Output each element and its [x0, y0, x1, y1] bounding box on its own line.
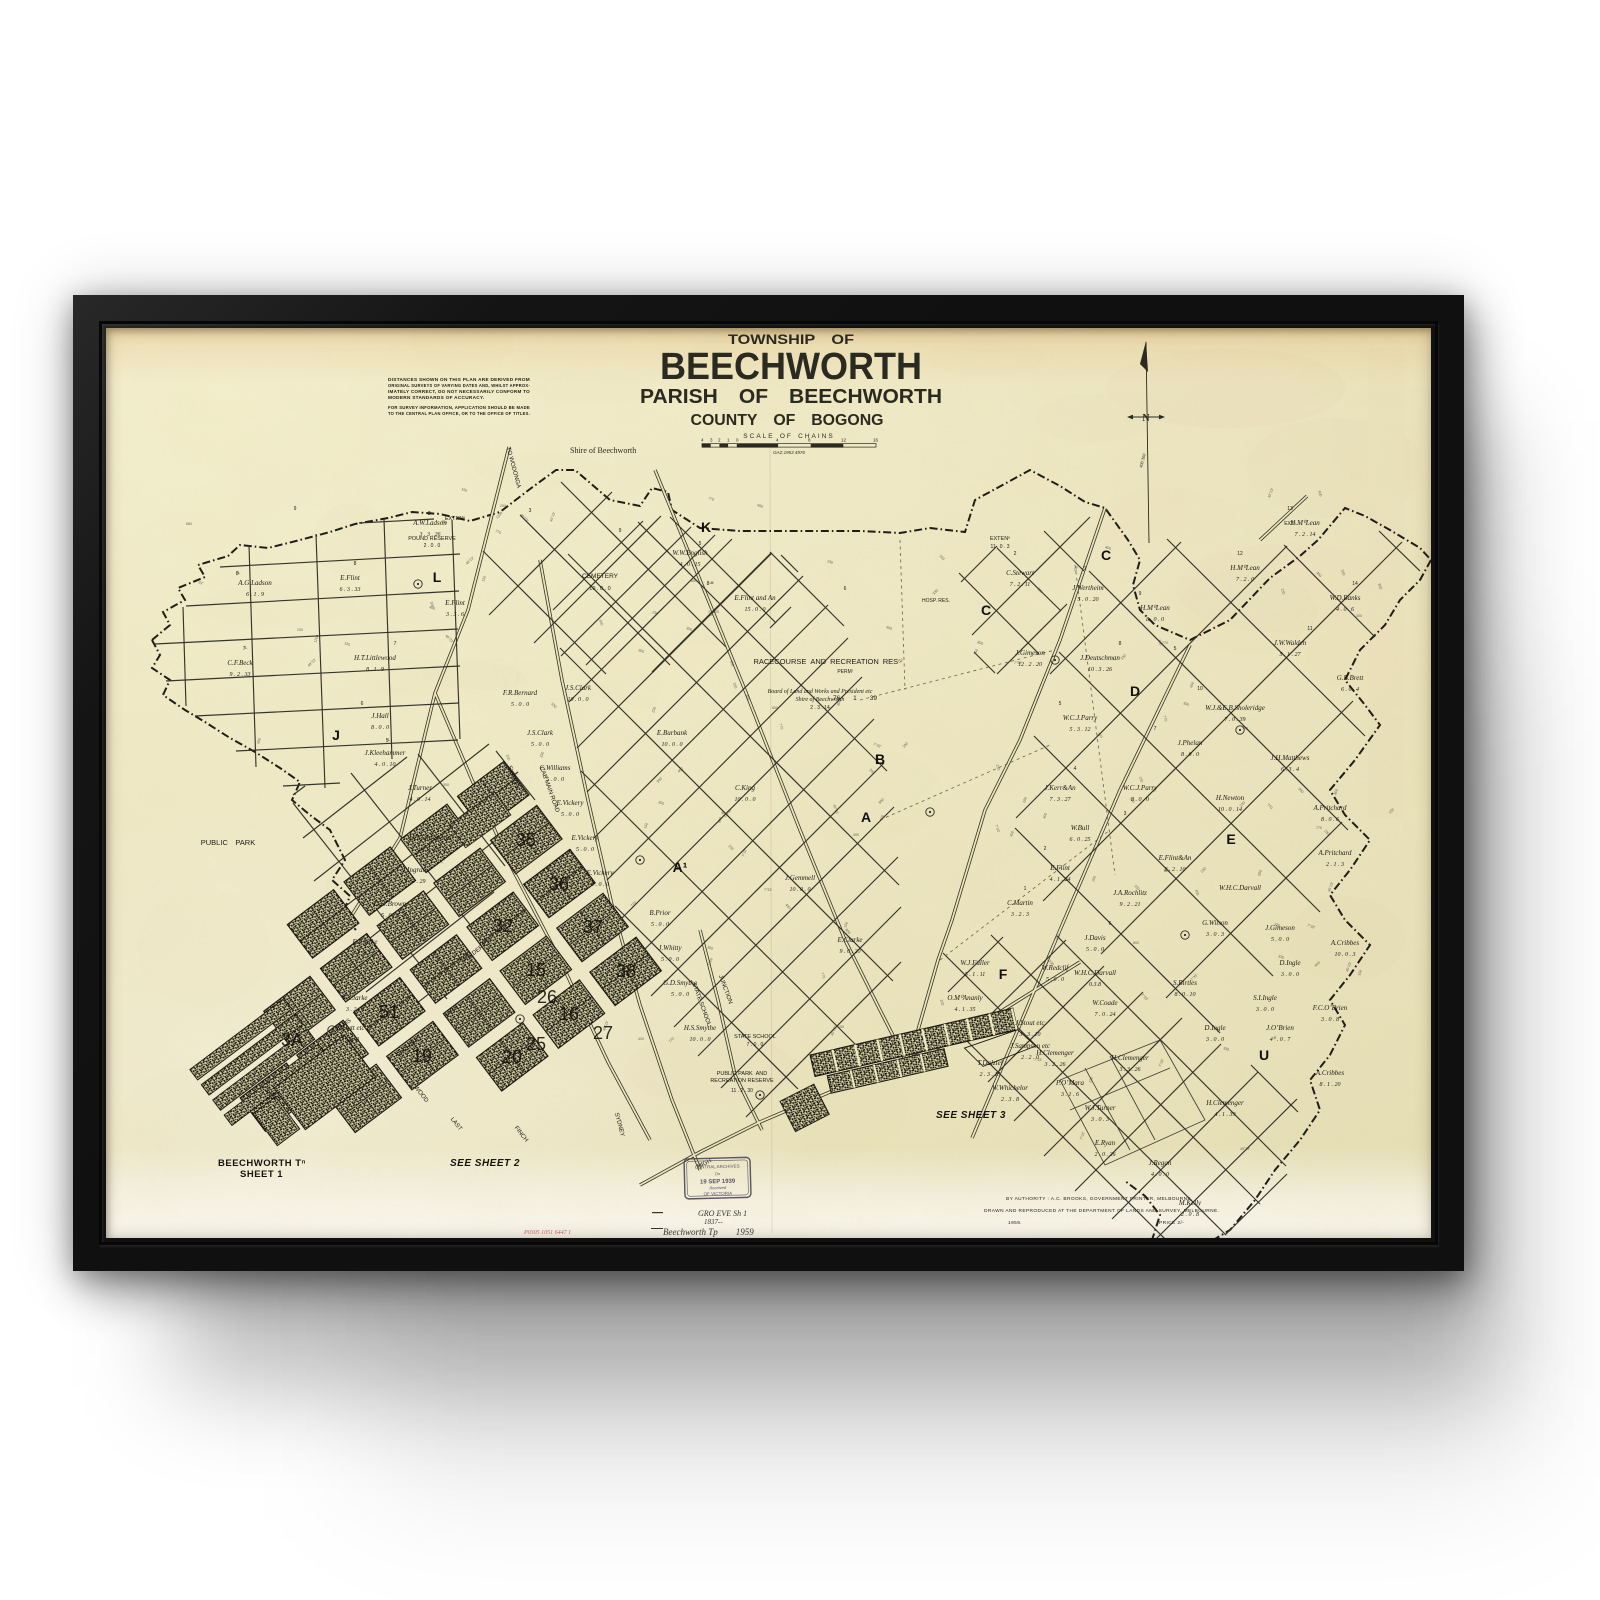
svg-text:8⸱ᴹ: 8⸱ᴹ [707, 581, 714, 587]
svg-text:150: 150 [838, 1025, 844, 1029]
svg-text:9: 9 [619, 528, 622, 534]
svg-text:2ᴸ: 2ᴸ [428, 511, 433, 517]
svg-text:5 . 0 . 0: 5 . 0 . 0 [661, 957, 679, 963]
svg-text:SCALE OF CHAINS: SCALE OF CHAINS [743, 433, 834, 440]
svg-text:U: U [1259, 1047, 1269, 1063]
svg-text:J.Ingram: J.Ingram [402, 866, 427, 874]
svg-text:PERMⁱ: PERMⁱ [837, 668, 852, 675]
svg-text:5 . 0 . 0: 5 . 0 . 0 [1086, 947, 1104, 953]
svg-text:400: 400 [638, 1037, 644, 1041]
svg-text:5 . 0 . 0: 5 . 0 . 0 [1271, 937, 1289, 943]
svg-text:P.OʼMara: P.OʼMara [1055, 1079, 1085, 1087]
svg-text:5ᴸ: 5ᴸ [386, 738, 391, 744]
svg-text:H.Clemenger: H.Clemenger [1035, 1049, 1074, 1057]
svg-text:S.Birtles: S.Birtles [1173, 979, 1197, 987]
svg-text:9 . 0 . 20: 9 . 0 . 20 [840, 949, 861, 955]
svg-text:J.Regan: J.Regan [1149, 1159, 1172, 1167]
svg-text:1837--: 1837-- [704, 1218, 723, 1226]
svg-text:6 . 0 . 4: 6 . 0 . 4 [1341, 686, 1359, 693]
svg-text:4 . 0 . 2: 4 . 0 . 2 [356, 950, 374, 957]
svg-text:5 . 0 . 0: 5 . 0 . 0 [561, 812, 579, 818]
svg-text:C.Stewart: C.Stewart [1006, 569, 1035, 577]
svg-text:D.Ingle: D.Ingle [1203, 1024, 1225, 1032]
svg-text:H.T.Littlewood: H.T.Littlewood [353, 654, 396, 662]
svg-text:12: 12 [841, 438, 847, 443]
svg-text:FOR SURVEY INFORMATION, APPLIC: FOR SURVEY INFORMATION, APPLICATION SHOU… [388, 405, 530, 410]
svg-text:3 . 0 . 3: 3 . 0 . 3 [1205, 932, 1224, 938]
svg-text:J.Gimeson: J.Gimeson [1265, 924, 1295, 932]
svg-text:5 . 0 . 0: 5 . 0 . 0 [671, 992, 689, 998]
svg-text:PRICE 2/-: PRICE 2/- [1159, 1220, 1184, 1226]
svg-text:E.Flint: E.Flint [339, 574, 361, 582]
svg-text:J.Gemmell: J.Gemmell [785, 874, 815, 882]
svg-text:7ᴸ: 7ᴸ [243, 646, 248, 652]
svg-text:5 . 1 . 11: 5 . 1 . 11 [965, 972, 986, 978]
svg-text:RACECOURSE AND RECREATION R: RACECOURSE AND RECREATION RES⁵ⁱ [753, 657, 902, 666]
svg-text:3 . 3 . 6: 3 . 3 . 6 [445, 612, 464, 618]
svg-text:MODERN STANDARDS OF ACCURACY.: MODERN STANDARDS OF ACCURACY. [388, 395, 484, 400]
svg-text:3 . 2 . 26: 3 . 2 . 26 [1044, 1062, 1066, 1068]
svg-text:4 . 0 . 15: 4 . 0 . 15 [680, 561, 701, 568]
svg-text:5 . 0 . 0: 5 . 0 . 0 [531, 742, 549, 748]
svg-text:W.J.Turner: W.J.Turner [1085, 1104, 1116, 1112]
svg-text:H.Clemenger: H.Clemenger [1110, 1054, 1149, 1062]
svg-text:COUNTY OF BOGONG: COUNTY OF BOGONG [691, 412, 884, 429]
svg-text:10 . 0 . 0: 10 . 0 . 0 [568, 697, 589, 703]
svg-text:8ᴸ: 8ᴸ [236, 571, 241, 577]
svg-text:0.3.8: 0.3.8 [1089, 982, 1101, 988]
svg-text:2 . 0 . 26: 2 . 0 . 26 [1095, 1152, 1116, 1158]
svg-text:A.Cribbes: A.Cribbes [1330, 939, 1359, 947]
svg-text:Board of Land and Works and Pr: Board of Land and Works and President et… [768, 688, 873, 695]
svg-text:37: 37 [583, 917, 603, 937]
svg-text:8: 8 [1119, 641, 1122, 647]
svg-text:W.J.Fuller: W.J.Fuller [960, 959, 990, 967]
svg-text:E.Flint: E.Flint [444, 599, 466, 607]
svg-text:10 . 0 . 3: 10 . 0 . 3 [1335, 952, 1356, 958]
svg-text:26: 26 [537, 987, 557, 1007]
svg-text:3 . 0 . 8: 3 . 0 . 8 [1320, 1017, 1339, 1023]
svg-text:3 . 0 . 3: 3 . 0 . 3 [1090, 1117, 1109, 1123]
svg-text:C: C [981, 602, 991, 618]
svg-text:C: C [1101, 547, 1111, 563]
svg-text:7 . 0 . 24: 7 . 0 . 24 [1095, 1011, 1116, 1018]
svg-text:A¹: A¹ [673, 859, 688, 875]
svg-text:8 . 0 . 0: 8 . 0 . 0 [1181, 752, 1199, 758]
svg-text:J.Hall: J.Hall [371, 712, 388, 720]
svg-text:1959.: 1959. [1008, 1220, 1022, 1226]
svg-text:300: 300 [443, 783, 449, 787]
svg-text:5 . 1 . 27: 5 . 1 . 27 [1280, 652, 1302, 658]
svg-text:J.Gimeson: J.Gimeson [1015, 649, 1045, 657]
svg-text:J.Phelan: J.Phelan [1178, 739, 1203, 747]
svg-text:F: F [999, 966, 1008, 982]
svg-text:7 . 3 . 27: 7 . 3 . 27 [1050, 797, 1072, 803]
svg-text:10 . 3 . 26: 10 . 3 . 26 [1088, 667, 1112, 673]
svg-text:J.S.Clark: J.S.Clark [527, 729, 554, 737]
svg-text:E: E [1226, 831, 1235, 847]
svg-text:4: 4 [1074, 766, 1077, 772]
svg-text:W.H.C.Darvall: W.H.C.Darvall [1219, 884, 1261, 892]
svg-text:L: L [433, 569, 442, 585]
svg-text:C.Martin: C.Martin [1007, 899, 1033, 907]
svg-text:770: 770 [1162, 641, 1168, 645]
svg-text:25: 25 [526, 1034, 546, 1054]
svg-text:H.Clemenger: H.Clemenger [1205, 1099, 1244, 1107]
svg-text:J.Wertheim: J.Wertheim [1072, 584, 1103, 592]
svg-text:J.S.Clark: J.S.Clark [565, 684, 592, 692]
svg-text:T.Dalziel: T.Dalziel [977, 1059, 1002, 1067]
svg-text:3 . 0 . 0: 3 . 0 . 0 [1280, 972, 1299, 978]
svg-text:E.Flint and An: E.Flint and An [733, 594, 776, 602]
svg-text:J.A.Rochlitz: J.A.Rochlitz [1113, 889, 1147, 897]
svg-text:16: 16 [873, 438, 879, 443]
svg-text:7: 7 [394, 641, 397, 647]
svg-text:6 . 3 . 4: 6 . 3 . 4 [1281, 766, 1299, 773]
svg-text:OF VICTORIA: OF VICTORIA [704, 1191, 733, 1197]
svg-text:W.Redclif: W.Redclif [1042, 964, 1070, 972]
svg-text:E.Burbank: E.Burbank [656, 729, 688, 737]
svg-text:2 . 3 . 15: 2 . 3 . 15 [980, 1072, 1001, 1078]
svg-text:BY AUTHORITY : A.C. BROOKS: BY AUTHORITY : A.C. BROOKS, GOVERNMENT P… [1006, 1196, 1193, 1202]
svg-text:230: 230 [297, 628, 303, 632]
svg-text:E.Ryan: E.Ryan [1094, 1139, 1116, 1147]
svg-text:10 . 0 . 0: 10 . 0 . 0 [690, 1037, 711, 1043]
svg-text:E.Vickery: E.Vickery [556, 799, 585, 807]
svg-text:G.O.Brown: G.O.Brown [374, 900, 407, 908]
svg-text:D: D [1130, 683, 1140, 699]
svg-text:8 . 0 . 0: 8 . 0 . 0 [1146, 617, 1164, 623]
svg-text:5 . 0 . 0: 5 . 0 . 0 [1046, 977, 1064, 983]
svg-text:5: 5 [1174, 646, 1177, 652]
svg-text:P0305 1051 6447 1: P0305 1051 6447 1 [523, 1229, 571, 1236]
svg-text:2: 2 [1044, 846, 1047, 852]
svg-text:PUBLIC PARK AND: PUBLIC PARK AND [717, 1071, 768, 1077]
svg-text:3 . 1 . 6: 3 . 1 . 6 [1060, 1092, 1079, 1098]
svg-text:19: 19 [412, 1046, 432, 1066]
svg-text:5 . 3 . 12: 5 . 3 . 12 [1070, 727, 1091, 733]
svg-text:IMATELY CORRECT, DO NOT NECES: IMATELY CORRECT, DO NOT NECESSARILY CONF… [388, 389, 530, 394]
svg-text:3 . 0 . 0: 3 . 0 . 0 [1255, 1007, 1274, 1013]
svg-text:Shire of Beechworth: Shire of Beechworth [796, 696, 845, 703]
svg-text:14: 14 [1352, 581, 1358, 587]
svg-text:400: 400 [853, 833, 859, 837]
svg-text:4 . 1 . 35: 4 . 1 . 35 [955, 1006, 976, 1013]
svg-text:H.M⁰Lean: H.M⁰Lean [1139, 604, 1170, 612]
svg-text:1: 1 [1024, 886, 1027, 892]
svg-text:12 . 2 . 20: 12 . 2 . 20 [1018, 662, 1042, 668]
svg-text:BEECHWORTH Tⁿ: BEECHWORTH Tⁿ [218, 1158, 306, 1169]
svg-text:A.Pritchard: A.Pritchard [1313, 804, 1347, 812]
svg-text:POUND RESERVE: POUND RESERVE [408, 536, 456, 542]
svg-text:10 . 0 . 0: 10 . 0 . 0 [790, 887, 811, 893]
svg-text:G.B.Brett: G.B.Brett [1337, 674, 1365, 682]
svg-text:GAZ.1953 4976: GAZ.1953 4976 [773, 450, 805, 455]
svg-text:J.Kerr&An: J.Kerr&An [1044, 784, 1076, 792]
svg-text:3 . 3 . 29: 3 . 3 . 29 [404, 879, 426, 885]
svg-text:J.Whitty: J.Whitty [658, 944, 682, 952]
svg-text:B.Prior: B.Prior [649, 909, 670, 917]
svg-text:3 . 2 . 3: 3 . 2 . 3 [1010, 912, 1029, 918]
svg-text:8 . 0 . 0: 8 . 0 . 0 [1131, 797, 1149, 803]
svg-text:5 . 0 . 0: 5 . 0 . 0 [651, 922, 669, 928]
svg-text:5 . 0 . 0: 5 . 0 . 0 [576, 847, 594, 853]
svg-text:4 . 0 . 6: 4 . 0 . 6 [1336, 606, 1354, 613]
svg-text:3 . 0 . 0: 3 . 0 . 0 [1205, 1037, 1224, 1043]
svg-text:9 . 2 . 33: 9 . 2 . 33 [230, 672, 251, 678]
svg-text:11 . 0 . 3: 11 . 0 . 3 [990, 544, 1009, 550]
svg-text:32: 32 [493, 916, 513, 936]
svg-text:D.Ingle: D.Ingle [1278, 959, 1300, 967]
svg-text:C.F.Beck: C.F.Beck [227, 659, 253, 667]
svg-text:3 . 3 . 26: 3 . 3 . 26 [1119, 1067, 1141, 1073]
svg-text:15: 15 [526, 960, 546, 980]
svg-text:3 . 0 . 0: 3 . 0 . 0 [340, 1037, 359, 1043]
svg-text:O.M⁰Ananly: O.M⁰Ananly [947, 994, 983, 1002]
svg-text:HOSP. RES.: HOSP. RES. [922, 598, 950, 604]
svg-text:15 . 0 . 0: 15 . 0 . 0 [745, 607, 766, 613]
svg-text:6 . 3 . 33: 6 . 3 . 33 [340, 587, 361, 593]
svg-text:2 . 3 . 8: 2 . 3 . 8 [1001, 1097, 1019, 1103]
svg-text:TOWNSHIP OF: TOWNSHIP OF [728, 332, 854, 347]
svg-text:11: 11 [1307, 626, 1312, 632]
svg-text:5 . 0 . 0: 5 . 0 . 0 [381, 913, 399, 919]
svg-text:9: 9 [294, 506, 297, 512]
svg-text:2 . 2 . 0: 2 . 2 . 0 [1021, 1055, 1039, 1061]
svg-text:10 . 0 . 0: 10 . 0 . 0 [662, 742, 683, 748]
svg-text:SHEET 1: SHEET 1 [240, 1169, 283, 1180]
svg-text:2: 2 [1014, 551, 1017, 557]
svg-text:6: 6 [844, 586, 847, 592]
svg-text:16: 16 [559, 1004, 579, 1024]
svg-text:7 . 0 . 0: 7 . 0 . 0 [747, 1042, 764, 1048]
svg-text:F.R.Bernard: F.R.Bernard [502, 689, 538, 697]
svg-text:On: On [715, 1171, 721, 1176]
svg-text:H.S.Smythe: H.S.Smythe [683, 1024, 716, 1032]
svg-text:3: 3 [529, 508, 532, 514]
svg-text:E.Clarke: E.Clarke [351, 938, 377, 946]
svg-text:Received: Received [709, 1185, 727, 1190]
svg-text:A.Pritchard: A.Pritchard [1318, 849, 1352, 857]
svg-text:10 . 0 . 0: 10 . 0 . 0 [589, 586, 610, 592]
svg-text:3: 3 [1124, 811, 1127, 817]
svg-text:800: 800 [1133, 941, 1139, 945]
svg-text:E.Clarke: E.Clarke [341, 994, 367, 1002]
svg-text:4 . 0 . 10: 4 . 0 . 10 [375, 761, 396, 768]
svg-text:J.Davis: J.Davis [1084, 934, 1105, 942]
svg-text:6: 6 [361, 701, 364, 707]
svg-text:W.Bull: W.Bull [1071, 824, 1090, 832]
svg-text:35: 35 [516, 830, 536, 850]
svg-text:800: 800 [772, 706, 778, 710]
svg-text:6 . 0 . 25: 6 . 0 . 25 [1070, 837, 1091, 843]
svg-text:BEECHWORTH: BEECHWORTH [660, 346, 922, 388]
svg-text:E.Flint&An: E.Flint&An [1158, 854, 1192, 862]
svg-text:8 . 0 . 6: 8 . 0 . 6 [1321, 817, 1339, 823]
svg-text:5: 5 [1059, 701, 1062, 707]
svg-text:J.Deutschman: J.Deutschman [1080, 654, 1120, 662]
svg-text:J.Turner: J.Turner [408, 784, 432, 792]
svg-text:5 . 0 . 0: 5 . 0 . 0 [591, 882, 609, 888]
svg-text:660: 660 [186, 522, 192, 526]
svg-text:S.I.Ingle: S.I.Ingle [1253, 994, 1277, 1002]
svg-text:2 . 3 . 14: 2 . 3 . 14 [810, 705, 830, 711]
svg-text:8 . 2 . 10: 8 . 2 . 10 [1165, 867, 1186, 873]
svg-text:12: 12 [1237, 551, 1243, 557]
svg-text:E.Vickery: E.Vickery [586, 869, 615, 877]
svg-text:7 . 2 . 14: 7 . 2 . 14 [1295, 531, 1316, 538]
svg-text:20: 20 [502, 1047, 522, 1067]
svg-text:4 . 1 . 24: 4 . 1 . 24 [1050, 876, 1071, 883]
svg-text:7 . 0 . 39: 7 . 0 . 39 [1225, 717, 1246, 723]
svg-text:7°33': 7°33' [764, 888, 772, 892]
svg-text:8 . 1 . 9: 8 . 1 . 9 [366, 667, 384, 673]
svg-text:SEE SHEET 2: SEE SHEET 2 [450, 1158, 520, 1169]
svg-text:6 . 1 . 9: 6 . 1 . 9 [246, 592, 264, 598]
svg-text:H.M⁰Lean: H.M⁰Lean [1229, 564, 1260, 572]
svg-text:6: 6 [1109, 921, 1112, 927]
svg-text:36: 36 [549, 874, 569, 894]
svg-text:8 . 0 . 10: 8 . 0 . 10 [1175, 992, 1196, 998]
svg-text:8: 8 [354, 561, 357, 567]
svg-text:7 . 2 . 11: 7 . 2 . 11 [1010, 582, 1031, 588]
svg-text:3 . 3 . 10: 3 . 3 . 10 [1019, 1032, 1041, 1038]
svg-text:W.Whichelor: W.Whichelor [992, 1084, 1028, 1092]
svg-text:A.Cribbes: A.Cribbes [1315, 1069, 1344, 1077]
svg-text:ORIGINAL SURVEYS OF VARYING DA: ORIGINAL SURVEYS OF VARYING DATES AND, W… [388, 383, 530, 388]
svg-text:J.Kleehammer: J.Kleehammer [365, 749, 406, 757]
svg-text:J.H.Matthews: J.H.Matthews [1271, 754, 1310, 762]
svg-text:5: 5 [699, 541, 702, 547]
svg-text:7: 7 [1154, 726, 1157, 732]
svg-text:J.Sampson etc: J.Sampson etc [1010, 1042, 1051, 1050]
svg-text:9 . 2 . 21: 9 . 2 . 21 [1120, 902, 1141, 908]
svg-text:W.D.Banks: W.D.Banks [1330, 594, 1361, 602]
svg-text:5 . 0 . 20: 5 . 0 . 20 [1078, 597, 1099, 603]
svg-text:200: 200 [500, 504, 506, 508]
svg-text:10 . 0 . 14: 10 . 0 . 14 [1218, 806, 1242, 813]
svg-text:DISTANCES SHOWN ON THIS PLAN A: DISTANCES SHOWN ON THIS PLAN ARE DERIVED… [388, 377, 530, 382]
svg-text:W.C.J.Parry: W.C.J.Parry [1063, 714, 1098, 722]
svg-text:300: 300 [1356, 614, 1362, 618]
svg-text:E.Flint: E.Flint [1049, 864, 1071, 872]
svg-text:EXTENⁿ: EXTENⁿ [990, 535, 1010, 542]
svg-text:GRO EVE Sh 1: GRO EVE Sh 1 [698, 1209, 747, 1218]
svg-text:2 . 0 . 0: 2 . 0 . 0 [424, 543, 441, 549]
svg-text:660: 660 [691, 579, 697, 583]
svg-text:38: 38 [616, 961, 636, 981]
svg-text:W.C.J.Parry: W.C.J.Parry [1123, 784, 1158, 792]
svg-text:4 . 0 . 0: 4 . 0 . 0 [1151, 1171, 1169, 1178]
svg-text:10 . 0 . 0: 10 . 0 . 0 [735, 797, 756, 803]
svg-text:TO THE CENTRAL PLAN OFFICE, OR: TO THE CENTRAL PLAN OFFICE, OR TO THE OF… [388, 411, 530, 416]
svg-text:27: 27 [593, 1023, 613, 1043]
svg-text:Beechworth Tp 1959: Beechworth Tp 1959 [663, 1227, 754, 1237]
svg-text:J: J [332, 727, 340, 743]
svg-text:DRAWN AND REPRODUCED AT TH: DRAWN AND REPRODUCED AT THE DEPARTMENT O… [984, 1208, 1219, 1214]
svg-text:7 . 2 . 0: 7 . 2 . 0 [1236, 577, 1254, 583]
svg-text:W.Coade: W.Coade [1092, 999, 1117, 1007]
svg-text:C.King: C.King [735, 784, 756, 792]
svg-text:RECREATION RESERVE: RECREATION RESERVE [710, 1078, 774, 1084]
svg-text:H.Newton: H.Newton [1215, 794, 1245, 802]
svg-text:J.OʼBrien: J.OʼBrien [1266, 1024, 1294, 1032]
svg-text:5 . 0 . 0: 5 . 0 . 0 [511, 702, 529, 708]
svg-text:PARISH OF BEECHWORTH: PARISH OF BEECHWORTH [640, 386, 942, 408]
svg-text:4 . 0 . 22: 4 . 0 . 22 [420, 846, 441, 853]
svg-text:PUBLIC PARK: PUBLIC PARK [201, 838, 255, 847]
svg-text:51: 51 [379, 1002, 399, 1022]
svg-text:8 . 1 . 20: 8 . 1 . 20 [1320, 1082, 1341, 1088]
svg-text:EXTⁿ: EXTⁿ [1284, 521, 1296, 527]
svg-text:J.Stout etc: J.Stout etc [1015, 1019, 1045, 1027]
svg-text:CEMETERY: CEMETERY [582, 573, 619, 580]
svg-text:SEE SHEET 3: SEE SHEET 3 [936, 1110, 1006, 1121]
svg-text:F.C.OʼBrien: F.C.OʼBrien [1312, 1004, 1348, 1012]
svg-text:49°23': 49°23' [1240, 1147, 1250, 1151]
svg-text:1: 1 [1084, 566, 1087, 572]
svg-text:11 . 2 . 30: 11 . 2 . 30 [731, 1088, 753, 1094]
svg-text:9: 9 [1139, 591, 1142, 597]
svg-text:3A: 3A [281, 1030, 303, 1050]
svg-text:K: K [701, 519, 711, 535]
svg-text:H.T.Littlewood: H.T.Littlewood [408, 834, 451, 842]
svg-text:J.W.Walden: J.W.Walden [1274, 639, 1307, 647]
svg-text:A: A [861, 809, 871, 825]
svg-text:W.J.&E.B.Sholeridge: W.J.&E.B.Sholeridge [1205, 704, 1265, 712]
svg-text:4⁰ . 0 . 7: 4⁰ . 0 . 7 [1270, 1036, 1291, 1043]
svg-text:EXTENⁿ: EXTENⁿ [445, 515, 465, 522]
svg-text:G.Wilson: G.Wilson [1202, 919, 1228, 927]
svg-text:E.Clarke: E.Clarke [836, 936, 862, 944]
svg-text:8 . 0 . 0: 8 . 0 . 0 [371, 725, 389, 731]
svg-text:N: N [1142, 413, 1150, 424]
svg-text:10: 10 [1197, 686, 1203, 692]
svg-text:4 . 0 . 14: 4 . 0 . 14 [410, 796, 431, 803]
svg-text:13: 13 [1287, 506, 1293, 512]
svg-text:B: B [875, 751, 885, 767]
svg-text:W.H.C.Darvall: W.H.C.Darvall [1074, 969, 1116, 977]
svg-text:Shire of Beechworth: Shire of Beechworth [570, 446, 636, 455]
svg-text:STATE SCHOOL: STATE SCHOOL [734, 1034, 776, 1040]
svg-text:W.W.English: W.W.English [672, 549, 708, 557]
svg-text:4 . 1 . 39: 4 . 1 . 39 [1215, 1111, 1236, 1118]
svg-text:3 . 2 . 0: 3 . 2 . 0 [345, 1007, 364, 1013]
svg-text:E.Vickery: E.Vickery [571, 834, 600, 842]
svg-text:A.W.Ladson: A.W.Ladson [412, 519, 447, 527]
svg-text:A.G.Ladson: A.G.Ladson [237, 579, 272, 587]
svg-text:770: 770 [1316, 826, 1322, 830]
svg-text:2 . 1 . 3: 2 . 1 . 3 [1326, 862, 1344, 868]
